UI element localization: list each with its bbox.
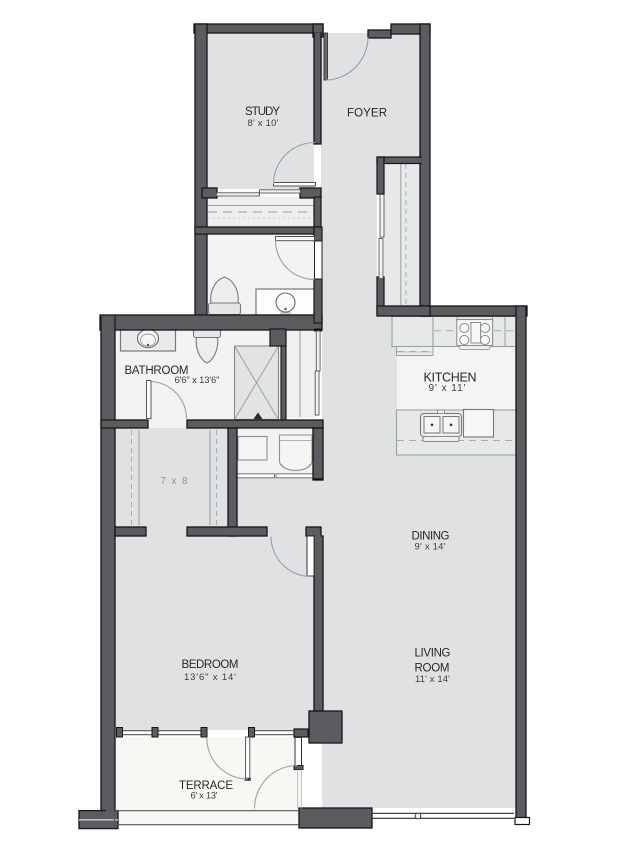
svg-text:8' x 10': 8' x 10' — [248, 118, 279, 129]
svg-text:6' x 13': 6' x 13' — [191, 791, 218, 802]
svg-text:STUDY: STUDY — [245, 106, 280, 118]
svg-text:ROOM: ROOM — [415, 663, 450, 675]
svg-text:7 x 8: 7 x 8 — [161, 476, 188, 487]
svg-text:13'6" x 14': 13'6" x 14' — [184, 672, 236, 683]
svg-text:FOYER: FOYER — [347, 107, 387, 119]
svg-text:LIVING: LIVING — [415, 648, 451, 660]
svg-text:11' x 14': 11' x 14' — [415, 674, 450, 685]
svg-text:9' x 14': 9' x 14' — [415, 541, 446, 552]
svg-text:BEDROOM: BEDROOM — [182, 659, 239, 671]
svg-text:6'6" x 13'6": 6'6" x 13'6" — [175, 375, 220, 386]
svg-text:9' x 11': 9' x 11' — [429, 383, 466, 394]
